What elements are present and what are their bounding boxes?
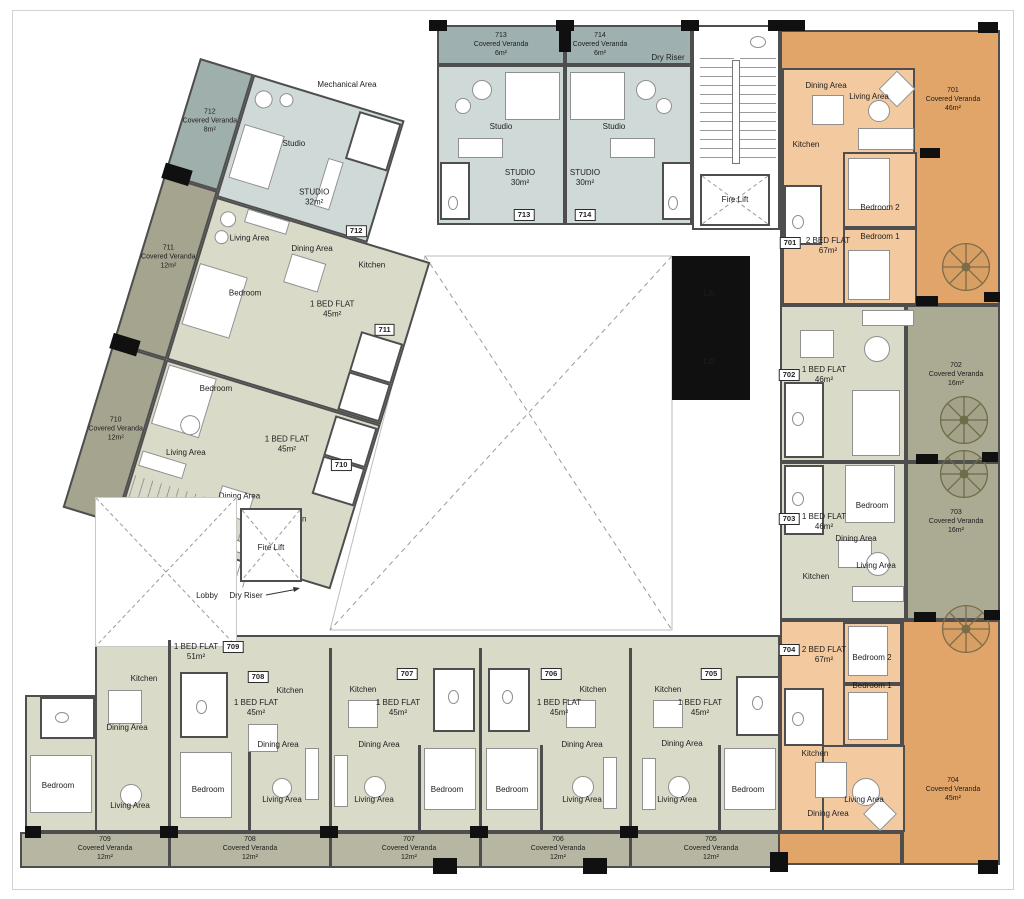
unit-708-bedroom-label: Bedroom [192,785,224,795]
unit-701-veranda-label: 701 Covered Veranda 46m² [926,87,980,113]
column [320,826,338,838]
unit-711-tag: 711 [375,324,395,336]
column [982,452,998,462]
unit-704-living-label: Living Area [844,795,884,805]
bed [570,72,625,120]
dining-table [108,690,142,724]
lobby-label: Lobby [196,591,218,601]
party-wall [329,648,332,832]
unit-710-bedroom-label: Bedroom [200,384,232,394]
unit-704-kitchen-label: Kitchen [802,749,829,759]
sofa [458,138,503,158]
toilet [196,700,207,714]
column [470,826,488,838]
side-table [455,98,471,114]
column [785,20,805,31]
unit-705-living-label: Living Area [657,795,697,805]
unit-714-tag: 714 [575,209,596,221]
bed [424,748,476,810]
unit-702-veranda-label: 702 Covered Veranda 16m² [929,362,983,388]
unit-713-bathroom [440,162,470,220]
unit-706-dining-label: Dining Area [561,740,602,750]
round-table [864,336,890,362]
unit-705-tag: 705 [701,668,722,680]
bedroom-partition [718,745,721,832]
dining-table [348,700,378,728]
unit-706-veranda-label: 706 Covered Veranda 12m² [531,836,585,862]
unit-713-tag: 713 [514,209,535,221]
unit-702-type-label: 1 BED FLAT 46m² [802,365,846,385]
unit-713-room-label: Studio [490,122,513,132]
unit-708-type-label: 1 BED FLAT 45m² [234,698,278,718]
unit-711-living-label: Living Area [230,233,270,243]
toilet [792,492,804,506]
unit-714-veranda-label: 714 Covered Veranda 6m² [573,32,627,58]
mechanical-area-label: Mechanical Area [317,80,376,90]
column [770,852,788,872]
unit-704-veranda [902,620,1000,865]
column [914,612,936,622]
sofa [858,128,914,150]
unit-708-living-label: Living Area [262,795,302,805]
bed [505,72,560,120]
unit-705-dining-label: Dining Area [661,739,702,749]
unit-713-veranda-label: 713 Covered Veranda 6m² [474,32,528,58]
unit-706-type-label: 1 BED FLAT 45m² [537,698,581,718]
unit-701-tag: 701 [780,237,801,249]
toilet [448,196,458,210]
stair-flight [740,58,776,166]
unit-709-tag: 709 [223,641,244,653]
column [556,20,574,31]
party-wall [629,648,632,832]
sofa [305,748,319,800]
toilet [792,412,804,426]
column [429,20,447,31]
lift-b-label: Lift [704,357,715,367]
unit-703-bedroom-label: Bedroom [856,501,888,511]
column [984,610,1000,620]
side-table [656,98,672,114]
unit-711-dining-label: Dining Area [291,244,332,254]
unit-712-veranda-label: 712 Covered Veranda 8m² [183,109,237,135]
unit-704-veranda-label: 704 Covered Veranda 45m² [926,777,980,803]
unit-710-tag: 710 [331,459,352,471]
bed [848,692,888,740]
unit-703-kitchen-label: Kitchen [803,572,830,582]
sofa [852,586,904,602]
unit-708-dining-label: Dining Area [257,740,298,750]
unit-711-veranda-label: 711 Covered Veranda 12m² [141,244,195,270]
column [978,860,998,874]
unit-709-type-label: 1 BED FLAT 51m² [174,642,218,662]
bedroom-partition [418,745,421,832]
tree-icon [940,241,992,293]
lobby-dry-riser-label: Dry Riser [229,591,262,601]
unit-711-type-label: 1 BED FLAT 45m² [310,300,354,320]
toilet [502,690,513,704]
unit-714-type-label: STUDIO 30m² [570,168,600,188]
unit-707-veranda-label: 707 Covered Veranda 12m² [382,836,436,862]
party-wall [168,640,171,832]
unit-711-bedroom-label: Bedroom [229,288,261,298]
toilet [792,712,804,726]
unit-702-tag: 702 [779,369,800,381]
unit-704-bedroom2-label: Bedroom 2 [852,653,891,663]
unit-708-tag: 708 [248,671,269,683]
unit-713-type-label: STUDIO 30m² [505,168,535,188]
unit-705-bedroom-label: Bedroom [732,785,764,795]
dining-table [812,95,844,125]
column [916,454,938,464]
bed [848,626,888,676]
unit-703-tag: 703 [779,513,800,525]
sofa [334,755,348,807]
unit-714-bathroom [662,162,692,220]
unit-706-living-label: Living Area [562,795,602,805]
toilet [668,196,678,210]
party-wall [479,648,482,832]
unit-712-type-label: STUDIO 32m² [299,187,329,207]
unit-709-living-label: Living Area [110,801,150,811]
unit-702-bathroom [784,382,824,458]
lift-shaft [672,256,750,400]
unit-706-kitchen-label: Kitchen [580,685,607,695]
unit-707-living-label: Living Area [354,795,394,805]
unit-710-veranda-label: 710 Covered Veranda 12m² [88,416,142,442]
unit-704-bathroom [784,688,824,746]
side-table [636,80,656,100]
floor-plan: 712 Covered Veranda 8m² Studio STUDIO 32… [0,0,1024,899]
unit-701-type-label: 2 BED FLAT 67m² [806,236,850,256]
unit-708-kitchen-label: Kitchen [277,686,304,696]
sofa [642,758,656,810]
lobby-fire-lift-label: Fire Lift [258,543,285,553]
unit-707-bedroom-label: Bedroom [431,785,463,795]
column [620,826,638,838]
lift-a-label: Lift [704,289,715,299]
unit-704-bedroom1-label: Bedroom 1 [852,681,891,691]
sofa [603,757,617,809]
unit-709-kitchen-label: Kitchen [131,674,158,684]
unit-704-tag: 704 [779,644,800,656]
column [916,296,938,306]
column [984,292,1000,302]
bed [848,250,890,300]
stair-fire-lift-label: Fire Lift [722,195,749,205]
sofa [862,310,914,326]
unit-709-bedroom-label: Bedroom [42,781,74,791]
round-table [868,100,890,122]
unit-703-veranda-label: 703 Covered Veranda 16m² [929,509,983,535]
unit-705-kitchen-label: Kitchen [655,685,682,695]
sink [750,36,766,48]
stair-stringer [732,60,740,164]
stair-flight [700,58,734,166]
column [978,22,998,33]
unit-712-room-label: Studio [283,139,306,149]
unit-709-veranda-label: 709 Covered Veranda 12m² [78,836,132,862]
unit-701-bedroom2-label: Bedroom 2 [860,203,899,213]
column [681,20,699,31]
toilet [752,696,763,710]
unit-707-kitchen-label: Kitchen [350,685,377,695]
unit-708-veranda-label: 708 Covered Veranda 12m² [223,836,277,862]
unit-704-type-label: 2 BED FLAT 67m² [802,645,846,665]
unit-704-veranda-bottom [770,832,902,865]
dry-riser-top-label: Dry Riser [651,53,684,63]
shaft-void [95,497,237,647]
unit-710-living-label: Living Area [166,448,206,458]
side-table [472,80,492,100]
unit-704-dining-label: Dining Area [807,809,848,819]
column [160,826,178,838]
unit-707-dining-label: Dining Area [358,740,399,750]
unit-703-living-label: Living Area [856,561,896,571]
unit-712-tag: 712 [346,225,367,237]
unit-709-dining-label: Dining Area [106,723,147,733]
column [768,20,786,31]
bed [845,465,895,523]
sofa [610,138,655,158]
toilet [55,712,69,723]
bedroom-partition [248,745,251,832]
unit-714-room-label: Studio [603,122,626,132]
dining-table [815,762,847,798]
column [433,858,457,874]
unit-711-kitchen-label: Kitchen [359,260,386,270]
bed [852,390,900,456]
bed [486,748,538,810]
bed [724,748,776,810]
unit-703-dining-label: Dining Area [835,534,876,544]
unit-705-type-label: 1 BED FLAT 45m² [678,698,722,718]
unit-703-type-label: 1 BED FLAT 46m² [802,512,846,532]
unit-701-kitchen-label: Kitchen [793,140,820,150]
unit-706-tag: 706 [541,668,562,680]
unit-710-type-label: 1 BED FLAT 45m² [265,434,309,454]
column [25,826,41,838]
dining-table [800,330,834,358]
bedroom-partition [540,745,543,832]
unit-705-veranda-label: 705 Covered Veranda 12m² [684,836,738,862]
unit-706-bedroom-label: Bedroom [496,785,528,795]
column [920,148,940,158]
column [583,858,607,874]
toilet [448,690,459,704]
unit-707-type-label: 1 BED FLAT 45m² [376,698,420,718]
unit-701-dining-label: Dining Area [805,81,846,91]
tree-icon [938,394,990,446]
unit-701-bedroom1-label: Bedroom 1 [860,232,899,242]
unit-701-living-label: Living Area [849,92,889,102]
unit-707-tag: 707 [397,668,418,680]
toilet [792,215,804,229]
